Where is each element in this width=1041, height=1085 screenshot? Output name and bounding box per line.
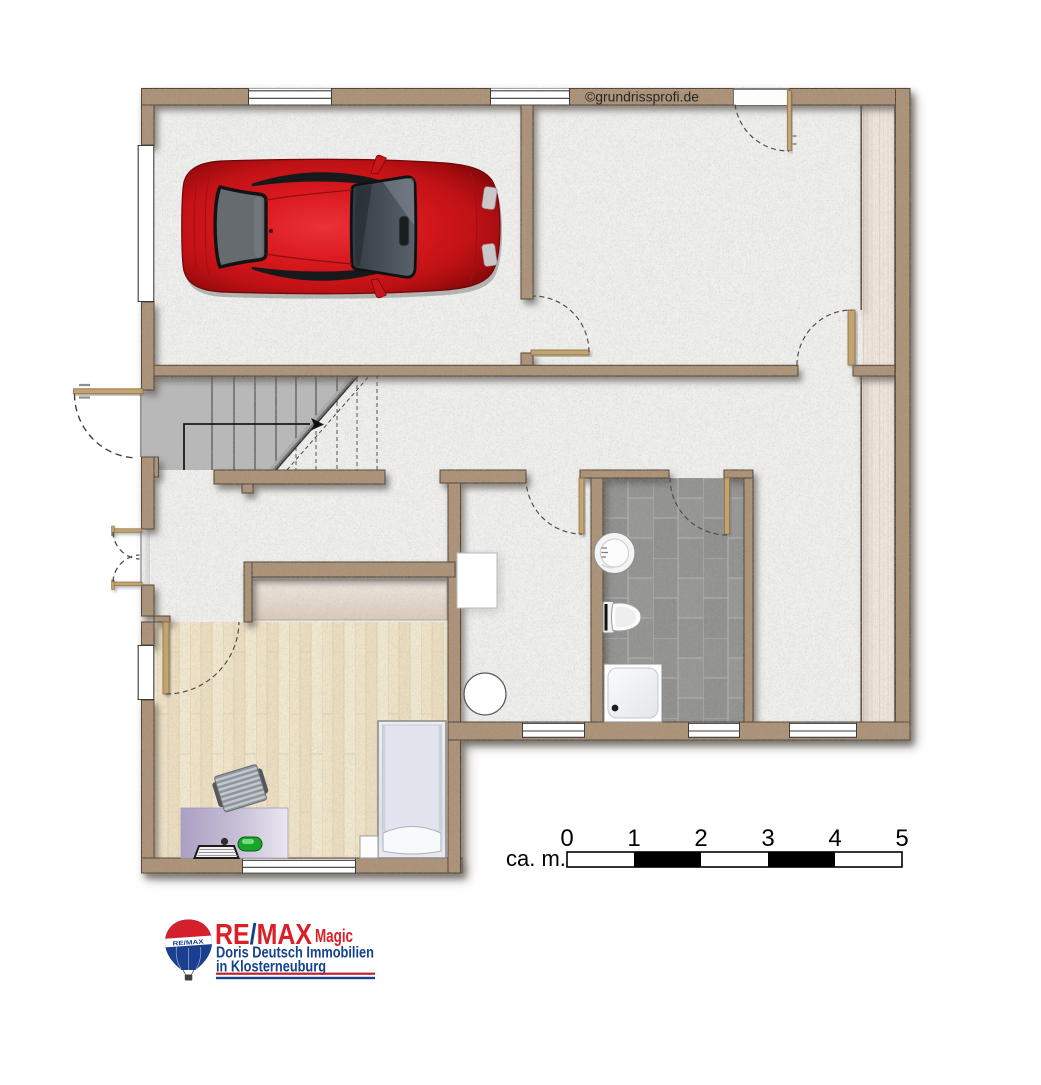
svg-text:3: 3 <box>761 825 774 852</box>
svg-text:2: 2 <box>694 825 707 852</box>
svg-text:5: 5 <box>895 825 908 852</box>
svg-text:1: 1 <box>627 825 640 852</box>
svg-text:©grundrissprofi.de: ©grundrissprofi.de <box>585 89 699 105</box>
svg-text:Magic: Magic <box>315 926 353 946</box>
svg-text:ca. m.: ca. m. <box>506 846 566 871</box>
svg-text:4: 4 <box>828 825 841 852</box>
svg-text:0: 0 <box>560 825 573 852</box>
